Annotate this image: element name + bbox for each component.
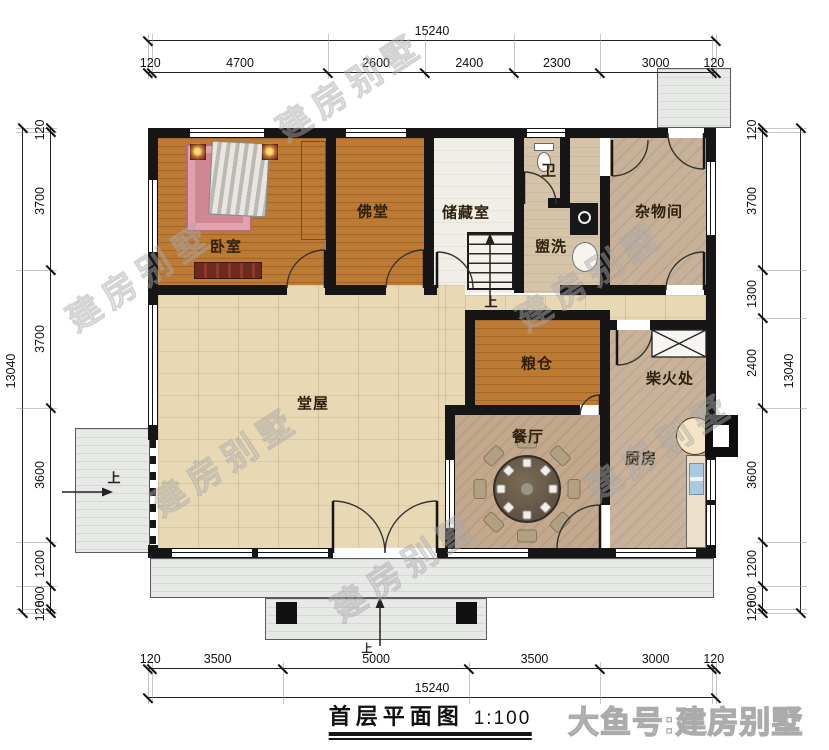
wall-segment (610, 320, 617, 330)
wall-segment (148, 128, 190, 138)
room-label-bedroom: 卧室 (210, 236, 242, 257)
window (172, 548, 252, 558)
watermark-corner: 大鱼号:建房别墅 (568, 697, 803, 742)
plan-scale: 1:100 (474, 708, 532, 729)
wall-segment (445, 405, 475, 415)
window (258, 548, 328, 558)
wash-basin (572, 242, 598, 272)
toilet-tank (534, 143, 554, 151)
entry-column-right (456, 602, 477, 624)
door-opening-front (333, 548, 437, 558)
dim-top-total-line (148, 40, 716, 41)
wall-segment (406, 128, 527, 138)
window (190, 128, 264, 138)
wall-segment (445, 410, 455, 460)
dim-left-seg-label: 120 (33, 120, 47, 141)
dim-left-seg-label: 3700 (33, 325, 47, 353)
dim-top-seg-label: 2600 (362, 56, 390, 70)
entry-column-left (276, 602, 297, 624)
wall-segment (424, 285, 437, 295)
wall-segment (325, 285, 386, 295)
dim-top-seg-line (148, 72, 716, 73)
room-label-toilet: 卫 (541, 160, 557, 181)
dresser (194, 262, 262, 279)
wall-segment (148, 252, 158, 305)
wardrobe (301, 141, 326, 240)
wall-segment (158, 285, 287, 295)
room-label-main_hall: 堂屋 (297, 393, 329, 414)
door-opening-back (668, 128, 704, 138)
wall-segment (148, 425, 158, 440)
dim-top-total-label: 15240 (415, 24, 450, 38)
stairs-up-label: 上 (484, 292, 497, 311)
dim-left-seg-label: 120 (33, 600, 47, 621)
room-label-utility: 杂物间 (635, 201, 683, 222)
dim-right-seg-label: 2400 (745, 349, 759, 377)
dim-bottom-total-label: 15240 (415, 681, 450, 695)
wall-segment (465, 405, 580, 415)
window (148, 180, 158, 252)
window (346, 128, 406, 138)
wall-segment (148, 138, 158, 180)
wall-segment (424, 138, 434, 293)
dining-plate (523, 511, 532, 520)
plan-title: 首层平面图 (329, 704, 464, 729)
window (527, 128, 565, 138)
dim-bottom-seg-line (148, 668, 716, 669)
lamp-right-icon (265, 147, 274, 156)
dim-right-seg-label: 120 (745, 600, 759, 621)
dim-right-seg-label: 120 (745, 120, 759, 141)
dining-chair (568, 479, 581, 499)
wall-segment (148, 548, 172, 558)
room-label-kitchen: 厨房 (625, 448, 657, 469)
wall-segment (696, 548, 716, 558)
staircase (467, 232, 514, 290)
dining-plate (523, 459, 532, 468)
entry-up-label: 上 (362, 640, 373, 656)
veranda-front (150, 558, 714, 598)
wall-segment (600, 320, 610, 505)
wall-segment (264, 128, 346, 138)
dim-bottom-seg-label: 3500 (204, 652, 232, 666)
dining-plate (549, 485, 558, 494)
wall-segment (600, 176, 610, 295)
title-block: 首层平面图1:100 (329, 699, 532, 740)
dim-right-seg-label: 3700 (745, 187, 759, 215)
wall-segment (650, 320, 716, 330)
dim-left-total-label: 13040 (4, 353, 18, 388)
floor-hall-strip (445, 285, 465, 410)
dim-top-seg-label: 3000 (642, 56, 670, 70)
dim-left-seg-label: 1200 (33, 550, 47, 578)
dim-bottom-seg-label: 120 (703, 652, 724, 666)
wall-segment (528, 548, 616, 558)
dim-right-seg-label: 3600 (745, 461, 759, 489)
dim-top-seg-label: 120 (703, 56, 724, 70)
dim-top-seg-label: 2400 (455, 56, 483, 70)
window (148, 305, 158, 425)
dim-right-total-line (800, 128, 801, 613)
dim-bottom-seg-label: 120 (140, 652, 161, 666)
room-label-wash: 盥洗 (535, 236, 567, 257)
washing-machine-drum (578, 211, 591, 224)
room-label-firewood: 柴火处 (646, 368, 694, 389)
wall-segment (548, 198, 566, 208)
title-underline-thick (329, 732, 532, 736)
stove-chimney-inner (711, 423, 731, 449)
wall-segment (465, 310, 610, 320)
dining-chair (474, 479, 487, 499)
porch-opening (150, 440, 156, 545)
entry-platform (265, 598, 487, 640)
window (616, 548, 696, 558)
dim-left-seg-label: 3700 (33, 187, 47, 215)
dining-chair (517, 530, 537, 543)
dim-bottom-total-line (148, 697, 716, 698)
room-label-dining: 餐厅 (512, 426, 544, 447)
dim-right-total-label: 13040 (782, 353, 796, 388)
dim-bottom-seg-label: 3500 (521, 652, 549, 666)
wall-segment (514, 138, 524, 293)
room-label-storage: 储藏室 (442, 202, 490, 223)
kitchen-sink (689, 463, 704, 495)
window (448, 548, 528, 558)
wall-segment (560, 285, 610, 295)
window (706, 162, 716, 235)
dim-top-seg-label: 4700 (226, 56, 254, 70)
dim-left-total-line (22, 128, 23, 613)
dim-right-seg-label: 1200 (745, 550, 759, 578)
lamp-left-icon (193, 147, 202, 156)
dim-top-seg-label: 2300 (543, 56, 571, 70)
wall-segment (326, 138, 336, 288)
dining-plate (497, 485, 506, 494)
wall-segment (565, 128, 668, 138)
wall-segment (465, 310, 475, 415)
title-underline-thin (329, 738, 532, 740)
porch-up-label: 上 (107, 468, 120, 487)
wall-segment (610, 285, 666, 295)
wall-segment (704, 128, 716, 138)
room-label-granary: 粮仓 (521, 353, 553, 374)
dim-right-seg-label: 1300 (745, 280, 759, 308)
dining-table-center (520, 482, 534, 496)
porch-left (75, 428, 150, 553)
floor-main-hall (158, 285, 445, 548)
dim-left-seg-label: 3600 (33, 461, 47, 489)
dim-top-seg-label: 120 (140, 56, 161, 70)
wall-segment (704, 285, 716, 295)
room-label-buddha_hall: 佛堂 (357, 201, 389, 222)
bed (208, 141, 270, 218)
floor-plan-canvas: 首层平面图1:100 建房别墅 建房别墅 建房别墅 建房别墅 建房别墅 建房别墅… (0, 0, 829, 750)
window (706, 460, 716, 500)
window (706, 505, 716, 545)
dim-bottom-seg-label: 3000 (642, 652, 670, 666)
wall-segment (706, 138, 716, 162)
window (445, 460, 455, 528)
